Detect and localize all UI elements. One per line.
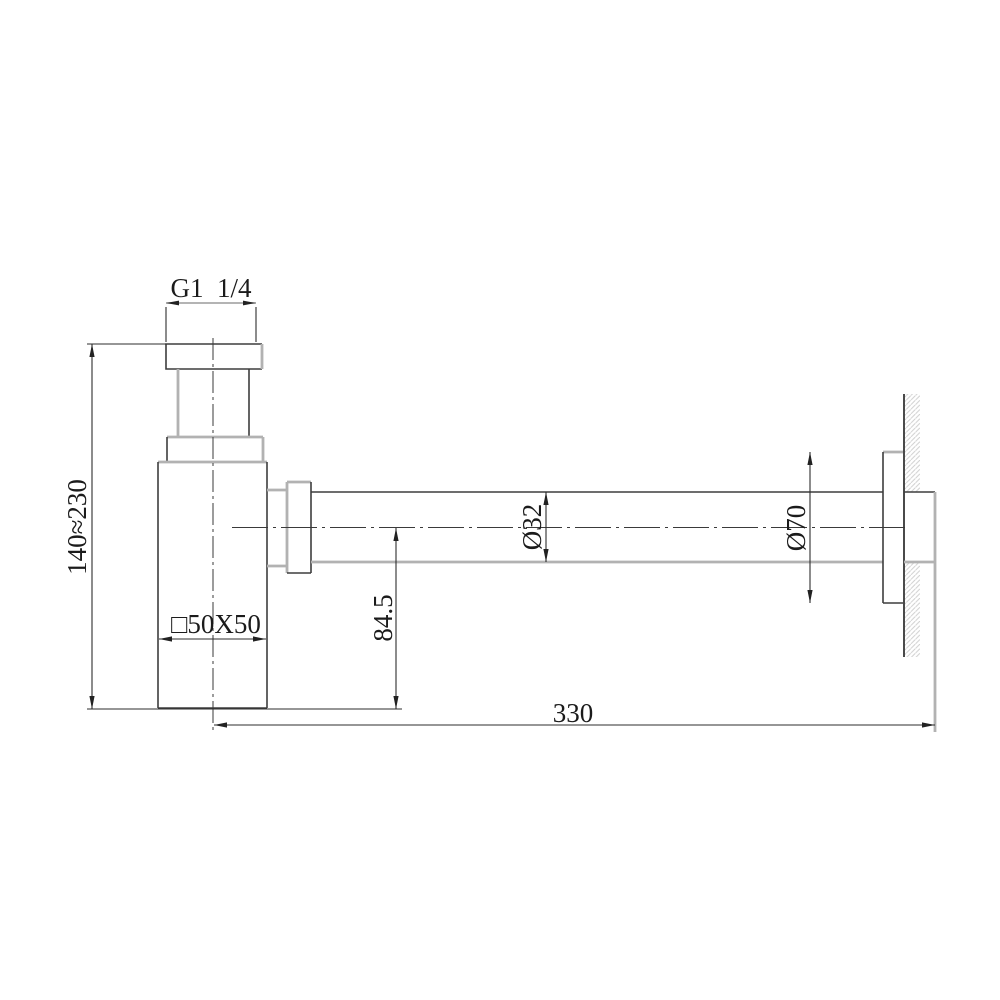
- wall-hatch-lower: [905, 562, 920, 657]
- dim-body-section: □50X50: [159, 609, 266, 642]
- dim-pipe-diameter: Ø32: [517, 492, 549, 562]
- dim-height-range: 140≈230: [62, 344, 402, 709]
- dim-outlet-drop: 84.5: [368, 528, 399, 709]
- collar-ring: [167, 437, 263, 462]
- wall-hatch-upper: [905, 394, 920, 492]
- inlet-nut: [166, 344, 262, 369]
- dim-flange-diameter: Ø70: [781, 452, 813, 603]
- thread-label: G1 1/4: [171, 273, 253, 303]
- wall: [904, 394, 920, 657]
- pipe-diameter-label: Ø32: [517, 504, 547, 551]
- height-range-label: 140≈230: [62, 479, 92, 575]
- bottle-trap-technical-drawing: G1 1/4 140≈230 □50X50 84.5 Ø32 Ø70: [0, 0, 1000, 1000]
- projection-length-label: 330: [553, 698, 594, 728]
- outlet-drop-label: 84.5: [368, 594, 398, 641]
- dim-projection-length: 330: [214, 698, 935, 728]
- dim-thread: G1 1/4: [166, 273, 256, 342]
- body-section-label: □50X50: [171, 609, 261, 639]
- flange-diameter-label: Ø70: [781, 505, 811, 552]
